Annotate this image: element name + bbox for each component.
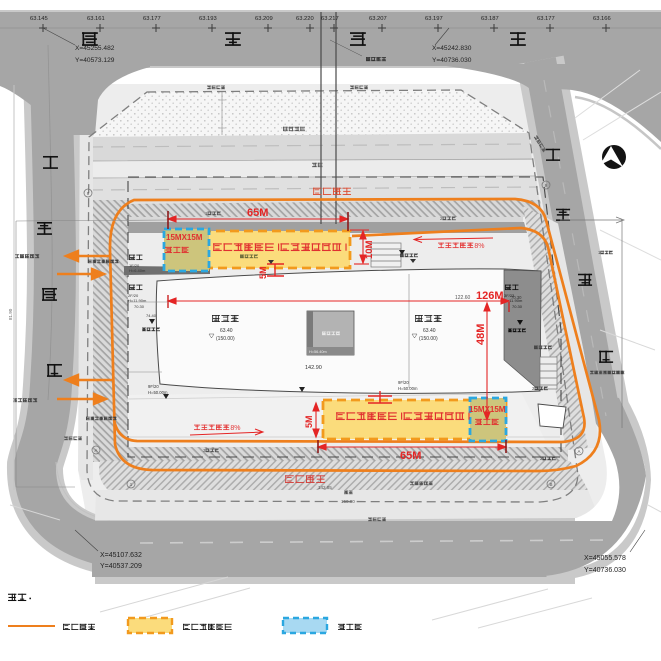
svg-text:63.207: 63.207 [369,16,387,22]
svg-text:63.166: 63.166 [593,16,611,22]
svg-text:48M: 48M [475,324,487,345]
svg-text:X=45255.482: X=45255.482 [75,45,115,52]
svg-text:63.209: 63.209 [255,16,273,22]
svg-text:63.40: 63.40 [220,328,233,334]
svg-text:15MX15M: 15MX15M [469,405,506,414]
svg-text:63.40: 63.40 [423,328,436,334]
svg-text:Y=40537.209: Y=40537.209 [100,563,142,570]
svg-text:(150.00): (150.00) [419,336,438,342]
svg-text:150.00: 150.00 [341,499,355,504]
svg-text:X=45055.578: X=45055.578 [584,555,626,562]
svg-text:122.60: 122.60 [455,295,471,301]
svg-text:63.161: 63.161 [87,16,105,22]
svg-text:X=45242.830: X=45242.830 [432,45,472,52]
svg-text:70.30: 70.30 [512,304,523,309]
svg-text:9F/20: 9F/20 [148,384,159,389]
svg-text:63.177: 63.177 [143,16,161,22]
svg-text:9F/20: 9F/20 [398,380,409,385]
svg-text:65M: 65M [247,207,268,219]
svg-text:63.197: 63.197 [425,16,443,22]
svg-text:B: B [549,482,552,487]
svg-text:74.40: 74.40 [146,313,157,318]
svg-text:8%: 8% [230,425,240,432]
svg-text:H=50.00m: H=50.00m [398,386,418,391]
svg-text:5M: 5M [304,415,314,428]
svg-text:63.187: 63.187 [481,16,499,22]
svg-text:63.145: 63.145 [30,16,48,22]
svg-text:142.85: 142.85 [318,485,332,490]
svg-text:Y=40573.129: Y=40573.129 [75,57,115,64]
svg-text:A: A [577,449,580,454]
svg-text:15MX15M: 15MX15M [166,233,203,242]
svg-text:H=56.40m: H=56.40m [309,350,327,354]
svg-text:63.193: 63.193 [199,16,217,22]
svg-text:142.90: 142.90 [305,365,322,371]
svg-text:70.30: 70.30 [134,304,145,309]
svg-text:70.30: 70.30 [511,295,522,300]
svg-text:X=45107.632: X=45107.632 [100,552,142,559]
svg-text:Y=40736.030: Y=40736.030 [584,567,626,574]
svg-text:10M: 10M [364,240,375,259]
svg-text:A: A [94,448,97,453]
svg-text:8%: 8% [474,243,484,250]
svg-text:Y=40736.030: Y=40736.030 [432,57,472,64]
svg-text:81.90: 81.90 [8,308,13,320]
svg-text:65M: 65M [400,450,421,462]
svg-text:5M: 5M [258,266,268,279]
svg-text:63.217: 63.217 [321,16,339,22]
svg-text:(150.00): (150.00) [216,336,235,342]
svg-text:63.177: 63.177 [537,16,555,22]
svg-text:126M: 126M [476,290,504,302]
svg-text:63.220: 63.220 [296,16,314,22]
svg-text:H=6.40m: H=6.40m [129,268,146,273]
